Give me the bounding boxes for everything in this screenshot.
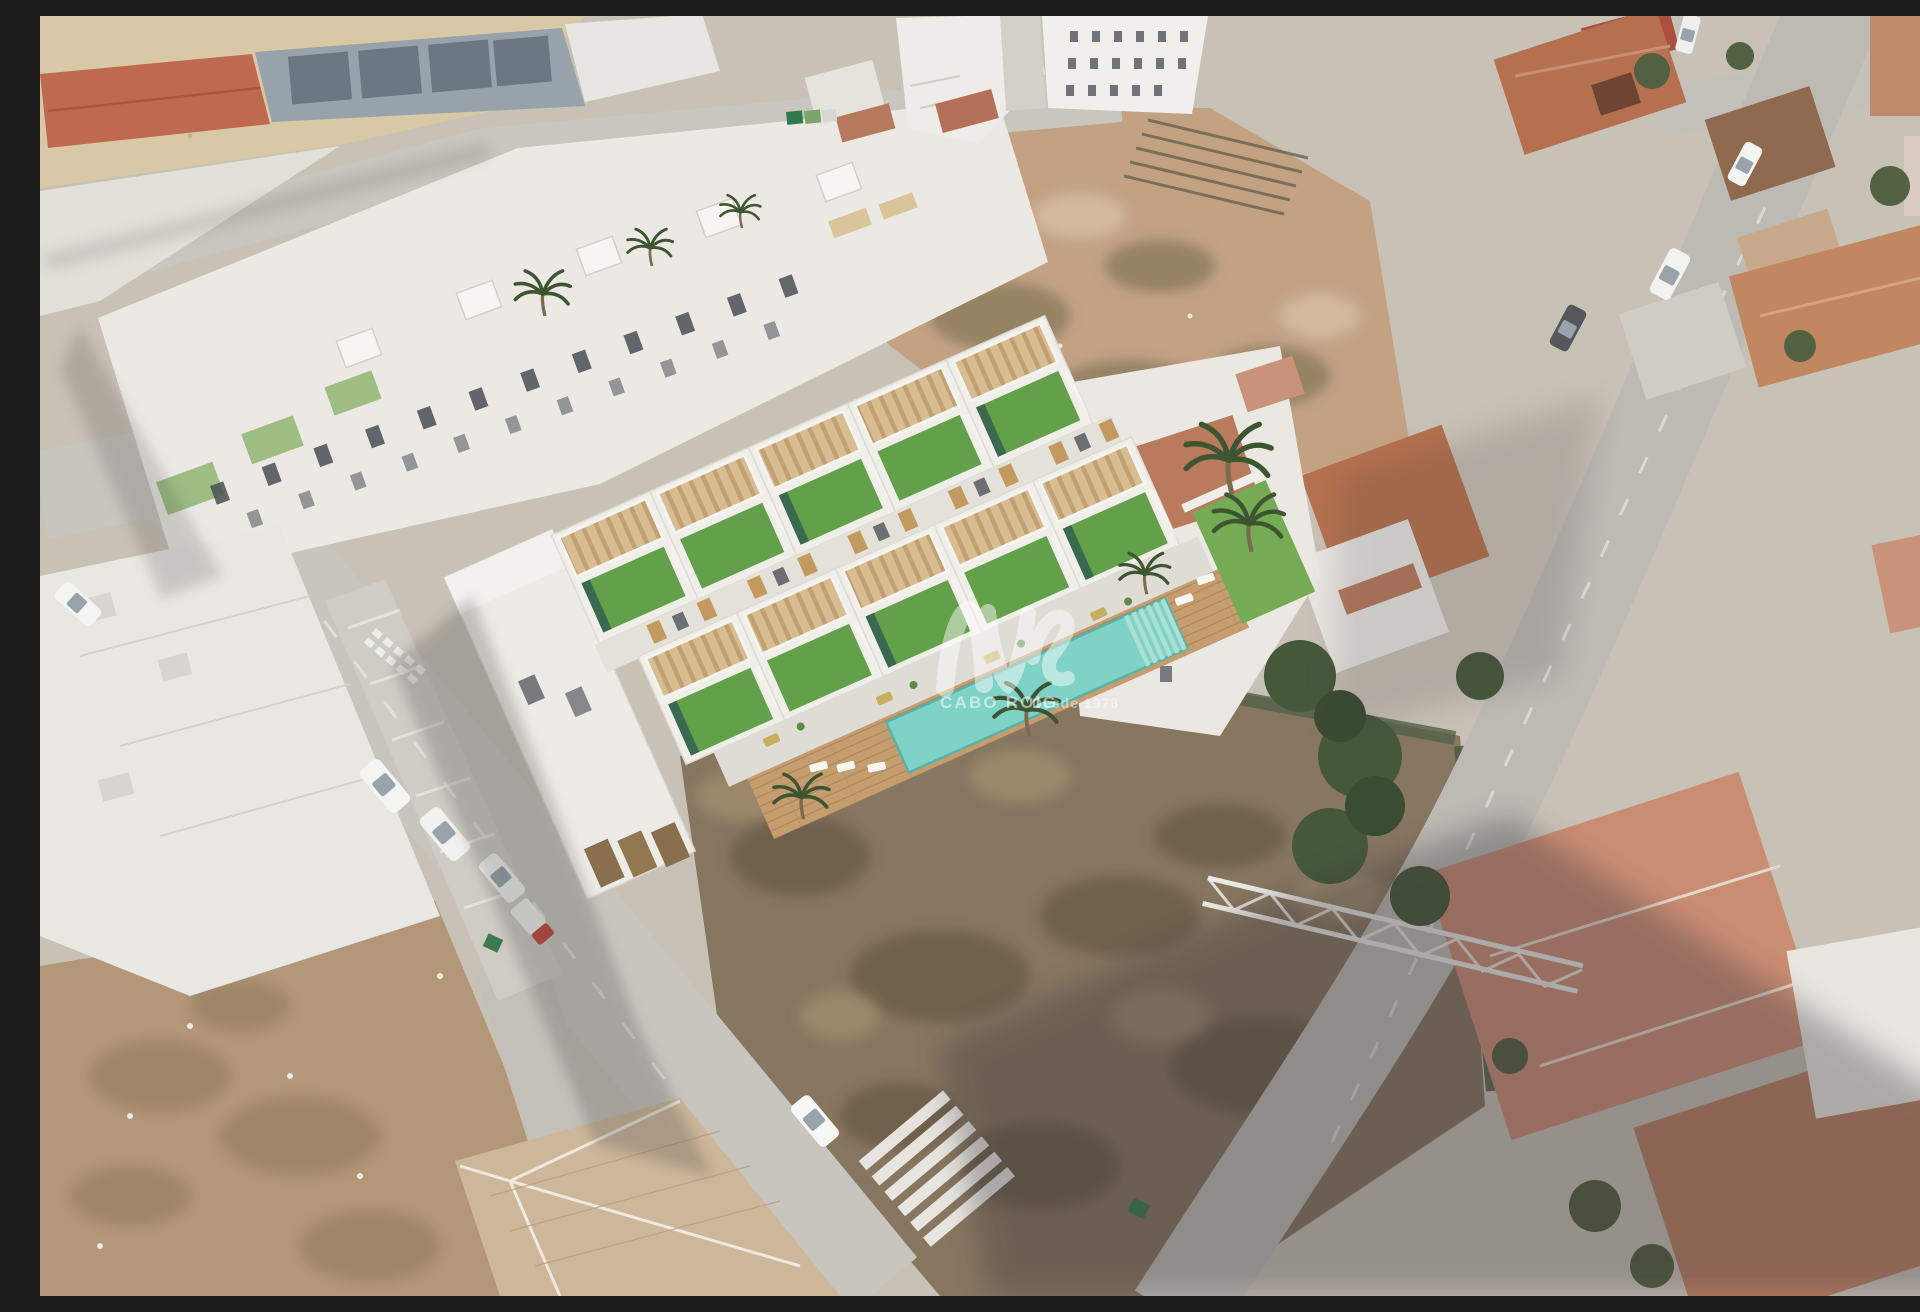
aerial-photo: CABO ROIG Desde 1978 [40,16,1920,1296]
watermark-tagline: Desde 1978 [1032,695,1119,711]
aerial-render-image: CABO ROIG Desde 1978 [40,16,1920,1296]
tall-apartment-building [1000,16,1208,114]
